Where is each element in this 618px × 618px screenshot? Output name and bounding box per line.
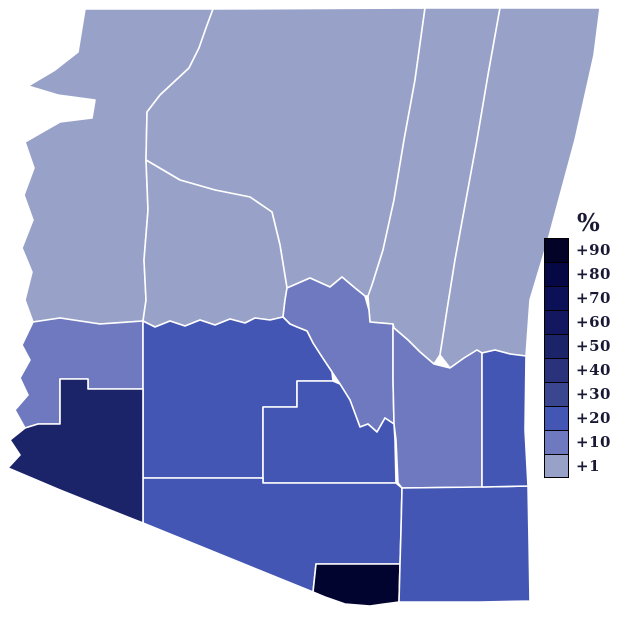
legend-swatch-80: [544, 262, 569, 286]
legend-swatch-10: [544, 430, 569, 454]
legend-label-90: +90: [576, 241, 611, 259]
legend-row-20: +20: [544, 406, 618, 430]
legend-swatch-70: [544, 286, 569, 310]
legend-label-20: +20: [576, 409, 611, 427]
legend-swatch-50: [544, 334, 569, 358]
legend-row-30: +30: [544, 382, 618, 406]
legend-swatch-60: [544, 310, 569, 334]
legend-swatch-90: [544, 238, 569, 262]
legend-label-50: +50: [576, 337, 611, 355]
county-cochise: [399, 486, 530, 602]
legend-row-70: +70: [544, 286, 618, 310]
legend-title-percent: %: [544, 208, 618, 238]
choropleth-map-stage: % +90+80+70+60+50+40+30+20+10+1: [0, 0, 618, 618]
legend-row-80: +80: [544, 262, 618, 286]
county-santa-cruz: [313, 564, 400, 606]
color-scale-legend: % +90+80+70+60+50+40+30+20+10+1: [544, 208, 618, 478]
legend-label-60: +60: [576, 313, 611, 331]
legend-label-40: +40: [576, 361, 611, 379]
legend-label-1: +1: [576, 457, 600, 475]
legend-label-10: +10: [576, 433, 611, 451]
legend-row-50: +50: [544, 334, 618, 358]
legend-swatch-30: [544, 382, 569, 406]
county-greenlee: [482, 350, 528, 487]
legend-row-60: +60: [544, 310, 618, 334]
legend-label-70: +70: [576, 289, 611, 307]
legend-swatch-1: [544, 454, 569, 478]
legend-row-1: +1: [544, 454, 618, 478]
legend-row-90: +90: [544, 238, 618, 262]
legend-swatch-20: [544, 406, 569, 430]
legend-row-10: +10: [544, 430, 618, 454]
legend-swatch-40: [544, 358, 569, 382]
legend-label-30: +30: [576, 385, 611, 403]
legend-row-40: +40: [544, 358, 618, 382]
arizona-county-map: [0, 0, 618, 618]
legend-rows: +90+80+70+60+50+40+30+20+10+1: [544, 238, 618, 478]
legend-label-80: +80: [576, 265, 611, 283]
